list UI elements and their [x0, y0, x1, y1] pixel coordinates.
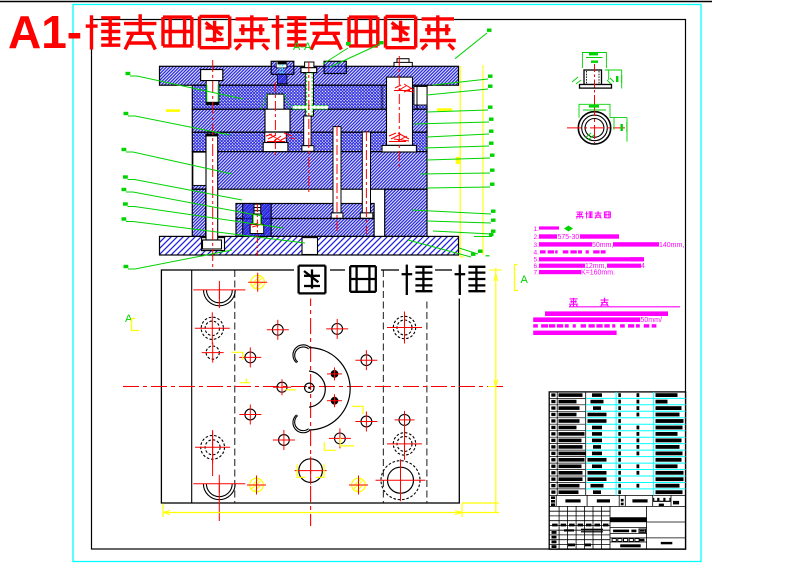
- svg-text:4: 4: [641, 263, 645, 270]
- svg-text:2.: 2.: [534, 234, 540, 241]
- svg-text:50mm,: 50mm,: [592, 242, 613, 249]
- svg-text:140mm,: 140mm,: [659, 242, 684, 249]
- svg-text:A-A: A-A: [293, 41, 312, 53]
- svg-text:A1-: A1-: [8, 6, 82, 58]
- svg-text:575-30: 575-30: [558, 234, 580, 241]
- svg-text:7.: 7.: [534, 270, 540, 277]
- svg-text:K=160mm.: K=160mm.: [581, 270, 615, 277]
- svg-text:A: A: [521, 274, 529, 286]
- svg-text:50mm/: 50mm/: [641, 317, 662, 324]
- svg-text:3.: 3.: [534, 242, 540, 249]
- svg-text:4.: 4.: [534, 250, 540, 257]
- svg-text:1.: 1.: [534, 226, 540, 233]
